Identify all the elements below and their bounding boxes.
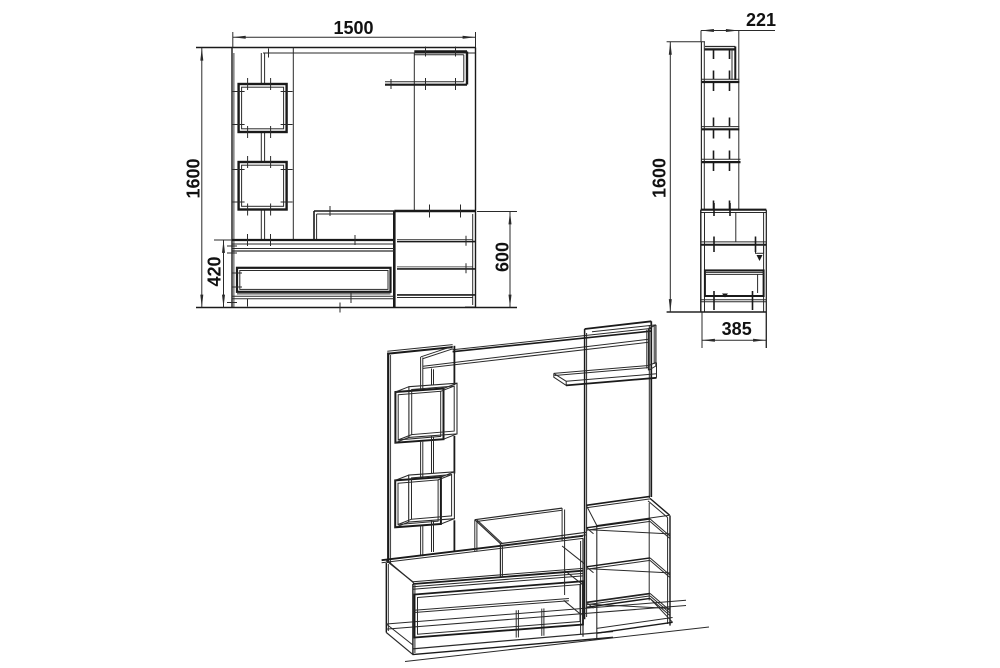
svg-text:1500: 1500 xyxy=(333,18,373,38)
svg-text:385: 385 xyxy=(722,319,752,339)
svg-text:1600: 1600 xyxy=(184,158,204,198)
svg-text:600: 600 xyxy=(493,242,513,272)
svg-text:420: 420 xyxy=(205,256,225,286)
svg-text:1600: 1600 xyxy=(650,158,670,198)
svg-text:221: 221 xyxy=(746,10,776,30)
